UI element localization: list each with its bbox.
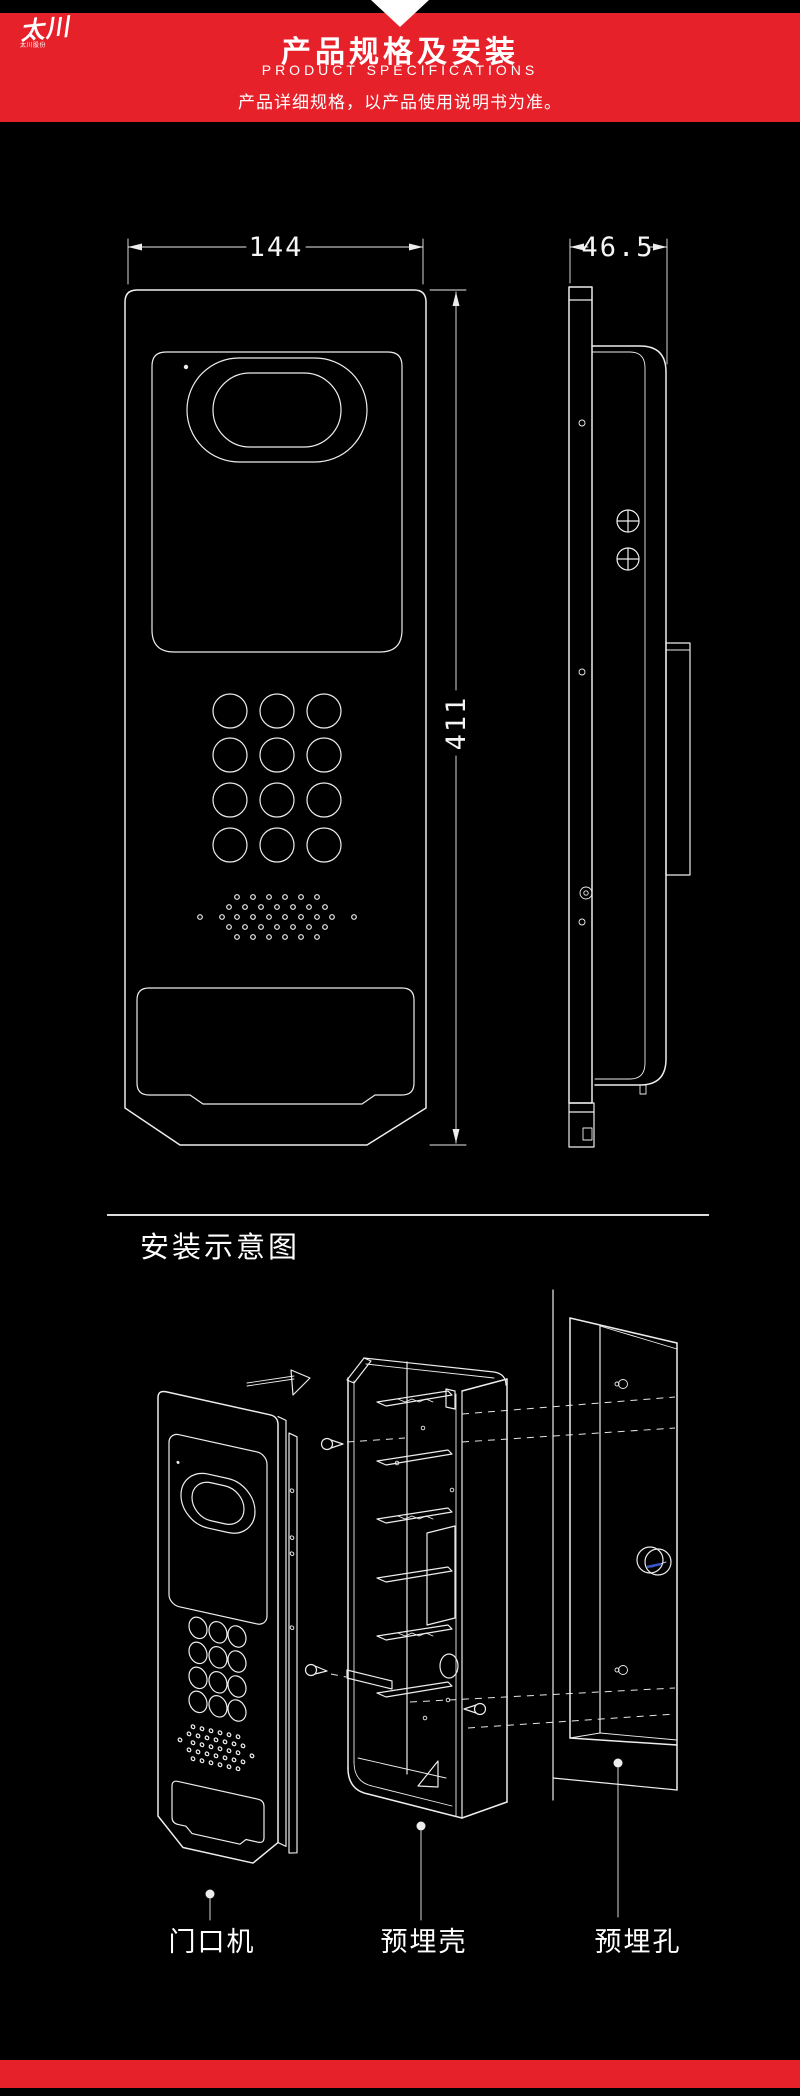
wire-hole-shell: [440, 1654, 458, 1678]
leader-door-station: [206, 1890, 215, 1921]
side-body-inner: [592, 352, 645, 1079]
side-front-plate: [569, 287, 592, 1103]
camera-panel: [152, 352, 402, 652]
embedded-hole-3d: [553, 1290, 677, 1800]
mounting-screw: [322, 1439, 344, 1450]
leader-embedded-shell: [417, 1822, 426, 1921]
wire-hole: [637, 1547, 671, 1575]
label-door-station: 门口机: [142, 1920, 282, 1959]
technical-drawing: 144 411: [0, 0, 800, 2096]
section-divider: [107, 1214, 709, 1216]
dimension-width: 144: [128, 232, 423, 284]
mic-hole: [184, 365, 188, 369]
mounting-screw: [306, 1665, 328, 1676]
dim-depth-value: 46.5: [581, 232, 654, 263]
embedded-shell-3d: [347, 1358, 507, 1818]
door-station-3d: [158, 1390, 297, 1873]
side-body-outer: [592, 346, 666, 1085]
installation-section-title: 安装示意图: [140, 1224, 300, 1266]
speaker-grille: [198, 895, 357, 940]
dimension-height: 411: [430, 290, 472, 1145]
side-screw: [617, 548, 639, 570]
installation-diagram: [158, 1290, 677, 1920]
keypad-3d: [189, 1615, 246, 1723]
camera-lens-inner: [213, 373, 341, 447]
keypad: [213, 694, 341, 862]
next-section-bar: [0, 2060, 800, 2088]
speaker-grille-3d: [178, 1722, 254, 1774]
label-embedded-shell: 预埋壳: [354, 1920, 494, 1959]
side-junction-box: [666, 643, 690, 875]
product-spec-page: 太川 太川股份 产品规格及安装 PRODUCT SPECIFICATIONS 产…: [0, 0, 800, 2096]
wiring-window: [427, 1526, 455, 1625]
side-view: 46.5: [569, 232, 690, 1147]
insert-direction-arrow: [247, 1370, 310, 1395]
front-outline: [125, 290, 426, 1145]
dimension-depth: 46.5: [570, 232, 667, 364]
dim-width-value: 144: [249, 232, 304, 263]
dim-height-value: 411: [441, 696, 472, 751]
front-view: 144 411: [125, 232, 472, 1145]
leader-embedded-hole: [614, 1759, 623, 1918]
label-embedded-hole: 预埋孔: [568, 1920, 708, 1959]
card-reader-area-3d: [172, 1780, 264, 1849]
card-reader-area: [137, 988, 414, 1104]
mounting-screw: [464, 1704, 486, 1715]
side-screw: [617, 510, 639, 532]
